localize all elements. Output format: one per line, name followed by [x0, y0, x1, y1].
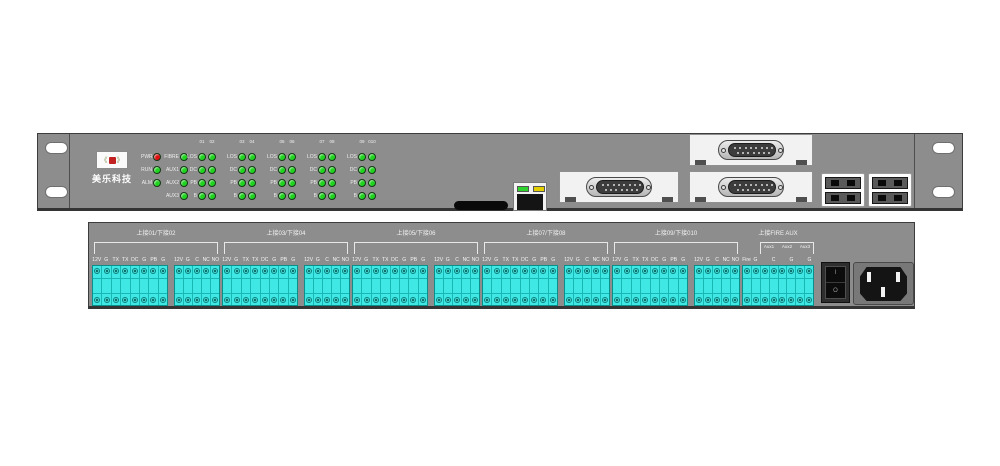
channel-header: 02: [209, 139, 214, 144]
channel-led-label: DC: [264, 167, 277, 173]
db15-screw: [646, 185, 651, 190]
terminal-group: 上接07/下接0812VGTXTXDCGPBG12VGCNCNO: [482, 227, 610, 308]
terminal: [651, 266, 660, 305]
ethernet-port: [513, 182, 547, 211]
screw-top: [714, 268, 720, 274]
terminal: [223, 266, 232, 305]
terminal: [140, 266, 149, 305]
channel-led-label: B: [344, 193, 357, 199]
screw-bottom: [771, 297, 777, 303]
channel-led-label: LOS: [264, 154, 277, 160]
terminal-label: 12V: [612, 257, 621, 263]
screw-top: [806, 268, 812, 274]
power-rocker: I O: [825, 266, 846, 299]
terminal: [761, 266, 770, 305]
screw-top: [661, 268, 667, 274]
terminal-label: Fire: [742, 257, 751, 263]
terminal-label: 12V: [694, 257, 703, 263]
channel-led: [318, 153, 326, 161]
screw-top: [315, 268, 321, 274]
dsub-shell: [728, 143, 776, 157]
screw-bottom: [290, 297, 296, 303]
dsub-shell: [728, 180, 776, 194]
dsub-pin: [610, 189, 612, 191]
terminal-label: NO: [602, 257, 610, 263]
terminal-label: G: [291, 257, 295, 263]
terminal-group: 上接01/下接0212VGTXTXDCGPBG12VGCNCNO: [92, 227, 220, 308]
channel-led: [288, 179, 296, 187]
terminal-label: TX: [633, 257, 639, 263]
dsub-pin: [747, 189, 749, 191]
db15-module-lower-right: [689, 171, 813, 203]
dsub-pin: [737, 189, 739, 191]
screw-bottom: [797, 297, 803, 303]
dsub-pin: [737, 152, 739, 154]
terminal-label: PB: [410, 257, 417, 263]
channel-led: [208, 166, 216, 174]
screw-top: [575, 268, 581, 274]
equipment-diagram: 《 》 美乐科技 010203040506070809010PWRFIBRELO…: [0, 0, 1000, 466]
terminal-label: G: [551, 257, 555, 263]
terminal-label: G: [421, 257, 425, 263]
terminal: [261, 266, 270, 305]
fiber-port: [872, 192, 908, 204]
screw-top: [494, 268, 500, 274]
screw-bottom: [176, 297, 182, 303]
terminal-label: NO: [212, 257, 220, 263]
dsub-pin: [613, 184, 615, 186]
aux-led-label: AUX3: [163, 193, 179, 199]
channel-led: [208, 179, 216, 187]
terminal-label: G: [576, 257, 580, 263]
channel-led: [288, 153, 296, 161]
screw-bottom: [454, 297, 460, 303]
dsub-pin: [623, 184, 625, 186]
dsub-pin: [763, 152, 765, 154]
screw-top: [762, 268, 768, 274]
screw-top: [614, 268, 620, 274]
screw-top: [382, 268, 388, 274]
screw-top: [252, 268, 258, 274]
terminal-label: NO: [472, 257, 480, 263]
terminal-label: TX: [642, 257, 648, 263]
terminal-label: G: [754, 257, 758, 263]
aux-label: Aux2: [782, 244, 792, 249]
relay-terminal-block: [564, 265, 610, 306]
channel-led-label: PB: [264, 180, 277, 186]
channel-led-label: LOS: [344, 154, 357, 160]
terminal: [305, 266, 314, 305]
terminal: [722, 266, 731, 305]
channel-header: 08: [329, 139, 334, 144]
screw-top: [652, 268, 658, 274]
channel-led-label: B: [264, 193, 277, 199]
channel-led-label: DC: [344, 167, 357, 173]
switch-on-mark: I: [835, 270, 837, 277]
screw-bottom: [373, 297, 379, 303]
terminal-group: 上接03/下接0412VGTXTXDCGPBG12VGCNCNO: [222, 227, 350, 308]
screw-top: [512, 268, 518, 274]
screw-top: [566, 268, 572, 274]
fiber-hole: [847, 180, 855, 186]
terminal-group: 上接09/下接01012VGTXTXDCGPBG12VGCNCNO: [612, 227, 740, 308]
dsub-pin: [745, 147, 747, 149]
screw-top: [484, 268, 490, 274]
screw-bottom: [575, 297, 581, 303]
screw-top: [373, 268, 379, 274]
dsub-pin: [631, 189, 633, 191]
screw-top: [333, 268, 339, 274]
screw-bottom: [212, 297, 218, 303]
screw-bottom: [753, 297, 759, 303]
terminal: [502, 266, 511, 305]
channel-led-label: PB: [224, 180, 237, 186]
channel-header: 01: [199, 139, 204, 144]
channel-led: [238, 166, 246, 174]
terminal: [471, 266, 479, 305]
aux-led-label: FIBRE: [163, 154, 179, 160]
screw-top: [392, 268, 398, 274]
fiber-hole: [878, 195, 886, 201]
screw-bottom: [382, 297, 388, 303]
terminal-label: G: [161, 257, 165, 263]
channel-led: [238, 153, 246, 161]
screw-top: [306, 268, 312, 274]
screw-bottom: [472, 297, 478, 303]
screw-bottom: [642, 297, 648, 303]
terminal: [121, 266, 130, 305]
aux-label: Aux1: [764, 244, 774, 249]
screw-bottom: [445, 297, 451, 303]
screw-top: [602, 268, 608, 274]
fiber-hole: [878, 180, 886, 186]
dsub-pin: [747, 152, 749, 154]
screw-bottom: [463, 297, 469, 303]
terminal: [381, 266, 390, 305]
fiber-adapter-module: [821, 173, 865, 207]
screw-bottom: [705, 297, 711, 303]
screw-bottom: [333, 297, 339, 303]
screw-bottom: [342, 297, 348, 303]
channel-led: [328, 166, 336, 174]
screw-top: [364, 268, 370, 274]
dsub-pin: [758, 189, 760, 191]
channel-led-label: LOS: [184, 154, 197, 160]
channel-led: [318, 166, 326, 174]
terminal-label: PB: [280, 257, 287, 263]
terminal-label: C: [325, 257, 329, 263]
terminal-label: G: [272, 257, 276, 263]
terminal: [184, 266, 193, 305]
screw-top: [522, 268, 528, 274]
screw-top: [342, 268, 348, 274]
screw-top: [141, 268, 147, 274]
channel-header: 05: [279, 139, 284, 144]
screw-bottom: [410, 297, 416, 303]
terminal-label: NC: [463, 257, 470, 263]
group-bracket: [614, 242, 738, 254]
dsub-pin: [766, 184, 768, 186]
screw-bottom: [652, 297, 658, 303]
front-panel: 《 》 美乐科技 010203040506070809010PWRFIBRELO…: [37, 133, 963, 211]
terminal-label: G: [364, 257, 368, 263]
group-bracket: [224, 242, 348, 254]
terminal: [242, 266, 251, 305]
db15-connector: [718, 140, 784, 160]
dsub-pin: [771, 147, 773, 149]
main-terminal-block: [352, 265, 428, 306]
channel-header: 03: [239, 139, 244, 144]
terminal: [574, 266, 583, 305]
channel-led: [368, 166, 376, 174]
terminal-group: 上接05/下接0612VGTXTXDCGPBG12VGCNCNO: [352, 227, 480, 308]
screw-bottom: [420, 297, 426, 303]
screw-top: [203, 268, 209, 274]
group-bracket: [354, 242, 478, 254]
terminal: [391, 266, 400, 305]
screw-bottom: [762, 297, 768, 303]
dsub-pin: [639, 184, 641, 186]
terminal-label: G: [142, 257, 146, 263]
group-bracket: [94, 242, 218, 254]
terminal: [419, 266, 427, 305]
screw-top: [540, 268, 546, 274]
fiber-hole: [894, 195, 902, 201]
terminal: [159, 266, 167, 305]
dsub-pin: [739, 147, 741, 149]
channel-led: [248, 153, 256, 161]
screw-top: [633, 268, 639, 274]
screw-top: [212, 268, 218, 274]
terminal: [175, 266, 184, 305]
terminal: [279, 266, 288, 305]
terminal-label: TX: [373, 257, 379, 263]
terminal: [362, 266, 371, 305]
screw-bottom: [633, 297, 639, 303]
screw-bottom: [540, 297, 546, 303]
channel-led: [368, 179, 376, 187]
terminal-label: DC: [521, 257, 528, 263]
screw-bottom: [150, 297, 156, 303]
screw-bottom: [104, 297, 110, 303]
dsub-pin: [755, 184, 757, 186]
fiber-port: [825, 192, 861, 204]
screw-bottom: [113, 297, 119, 303]
terminal-label: DC: [131, 257, 138, 263]
channel-led-label: DC: [224, 167, 237, 173]
terminal: [695, 266, 704, 305]
terminal-label: G: [624, 257, 628, 263]
terminal: [539, 266, 548, 305]
screw-bottom: [806, 297, 812, 303]
db15-module-lower-left: [559, 171, 679, 203]
mount-hole: [45, 186, 68, 198]
fiber-hole: [831, 180, 839, 186]
terminal: [270, 266, 279, 305]
screw-top: [401, 268, 407, 274]
db15-module-upper-right: [689, 134, 813, 166]
terminal: [353, 266, 362, 305]
terminal: [483, 266, 492, 305]
iec-pin: [881, 287, 885, 297]
channel-led: [318, 179, 326, 187]
dsub-pin: [626, 189, 628, 191]
ethernet-link-led: [517, 186, 529, 192]
terminal-label: PB: [150, 257, 157, 263]
terminal-label: C: [455, 257, 459, 263]
terminal-label: TX: [503, 257, 509, 263]
channel-led-label: LOS: [224, 154, 237, 160]
main-terminal-block: [612, 265, 688, 306]
terminal-label: G: [104, 257, 108, 263]
brand-emblem-icon: [109, 157, 116, 164]
terminal: [251, 266, 260, 305]
screw-top: [420, 268, 426, 274]
status-led-label: PWR: [141, 154, 152, 160]
screw-top: [771, 268, 777, 274]
terminal: [770, 266, 779, 305]
terminal-label: G: [186, 257, 190, 263]
channel-led: [248, 179, 256, 187]
screw-bottom: [392, 297, 398, 303]
screw-bottom: [280, 297, 286, 303]
status-led: [153, 153, 161, 161]
ethernet-activity-led: [533, 186, 545, 192]
screw-top: [113, 268, 119, 274]
group-header: 上接07/下接08: [476, 228, 616, 237]
terminal: [592, 266, 601, 305]
terminal: [400, 266, 409, 305]
screw-bottom: [602, 297, 608, 303]
terminal: [549, 266, 557, 305]
screw-top: [150, 268, 156, 274]
channel-led-label: PB: [184, 180, 197, 186]
dsub-pin: [753, 152, 755, 154]
terminal: [731, 266, 739, 305]
dsub-pin: [618, 184, 620, 186]
terminal: [779, 266, 788, 305]
channel-led: [278, 153, 286, 161]
channel-led: [248, 166, 256, 174]
screw-top: [410, 268, 416, 274]
screw-top: [744, 268, 750, 274]
screw-bottom: [141, 297, 147, 303]
terminal-label: 12V: [352, 257, 361, 263]
screw-top: [788, 268, 794, 274]
led-matrix: 010203040506070809010PWRFIBRELOSLOSLOSLO…: [141, 139, 383, 203]
channel-led: [358, 166, 366, 174]
screw-bottom: [531, 297, 537, 303]
channel-header: 010: [368, 139, 376, 144]
dsub-pin: [734, 184, 736, 186]
channel-led: [278, 166, 286, 174]
screw-top: [176, 268, 182, 274]
dsub-pin: [750, 147, 752, 149]
dsub-pin: [734, 147, 736, 149]
dsub-pin: [605, 189, 607, 191]
terminal: [660, 266, 669, 305]
fiber-hole: [847, 195, 855, 201]
screw-bottom: [503, 297, 509, 303]
screw-top: [290, 268, 296, 274]
status-led-label: RUN: [141, 167, 152, 173]
brand-logo: 《 》: [96, 151, 128, 169]
terminal-label: NC: [333, 257, 340, 263]
terminal-label: TX: [512, 257, 518, 263]
channel-led: [208, 153, 216, 161]
terminal: [93, 266, 102, 305]
main-terminal-block: [482, 265, 558, 306]
screw-bottom: [243, 297, 249, 303]
screw-top: [696, 268, 702, 274]
channel-led: [198, 166, 206, 174]
terminal-label: 12V: [174, 257, 183, 263]
channel-led-label: PB: [304, 180, 317, 186]
screw-bottom: [732, 297, 738, 303]
db15-screw: [778, 148, 783, 153]
channel-led: [368, 192, 376, 200]
mount-hole: [932, 142, 955, 154]
terminal-label: PB: [540, 257, 547, 263]
channel-led: [238, 179, 246, 187]
terminal: [679, 266, 687, 305]
dsub-pin: [745, 184, 747, 186]
terminal-label: NC: [593, 257, 600, 263]
screw-top: [243, 268, 249, 274]
channel-led: [328, 192, 336, 200]
terminal: [632, 266, 641, 305]
screw-bottom: [122, 297, 128, 303]
terminal: [341, 266, 349, 305]
db15-connector: [718, 177, 784, 197]
screw-top: [104, 268, 110, 274]
terminal-label: NC: [723, 257, 730, 263]
screw-top: [271, 268, 277, 274]
aux-led-label: AUX2: [163, 180, 179, 186]
screw-top: [280, 268, 286, 274]
screw-top: [705, 268, 711, 274]
channel-led-label: B: [304, 193, 317, 199]
dsub-pin: [607, 184, 609, 186]
terminal-label: TX: [243, 257, 249, 263]
channel-led: [238, 192, 246, 200]
terminal: [444, 266, 453, 305]
screw-top: [445, 268, 451, 274]
terminal-label: TX: [122, 257, 128, 263]
rj45-jack: [517, 194, 543, 210]
dsub-pin: [768, 152, 770, 154]
group-header: 上接09/下接010: [606, 228, 746, 237]
screw-bottom: [779, 297, 785, 303]
dsub-pin: [771, 184, 773, 186]
screw-top: [723, 268, 729, 274]
channel-header: 06: [289, 139, 294, 144]
channel-led-label: LOS: [304, 154, 317, 160]
terminal: [332, 266, 341, 305]
dsub-pin: [750, 184, 752, 186]
terminal-label: G: [446, 257, 450, 263]
terminal-label: DC: [651, 257, 658, 263]
terminal-label: G: [790, 257, 794, 263]
channel-header: 07: [319, 139, 324, 144]
screw-bottom: [696, 297, 702, 303]
screw-top: [262, 268, 268, 274]
terminal: [211, 266, 219, 305]
channel-led-label: DC: [304, 167, 317, 173]
terminal: [796, 266, 805, 305]
screw-top: [797, 268, 803, 274]
screw-bottom: [522, 297, 528, 303]
